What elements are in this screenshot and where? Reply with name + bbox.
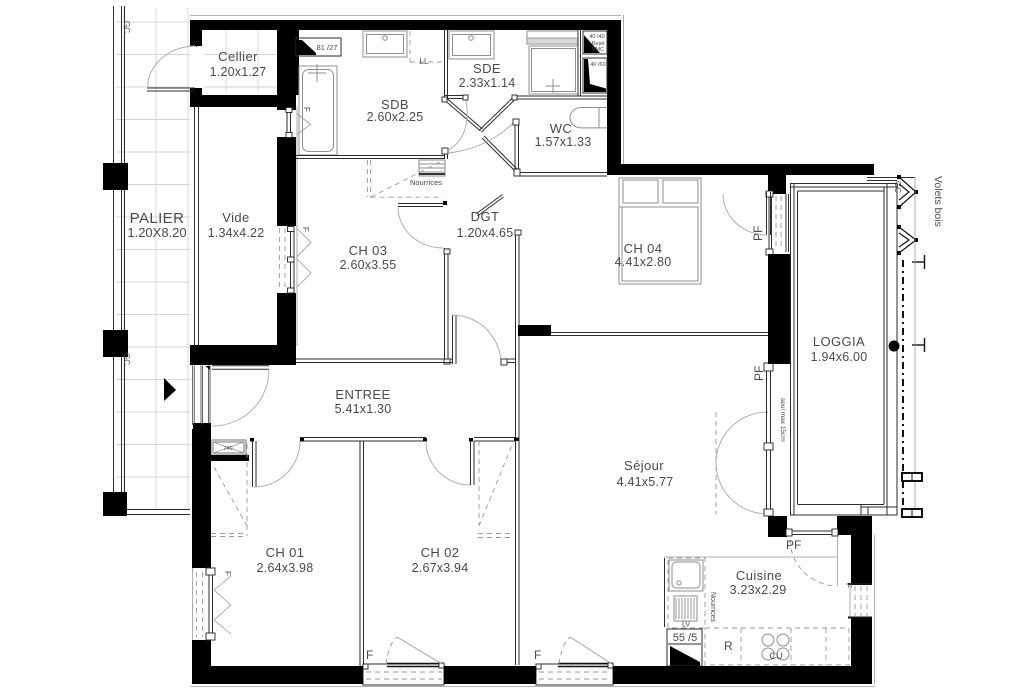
svg-text:4.41x2.80: 4.41x2.80 xyxy=(615,255,672,269)
svg-text:Nourrices: Nourrices xyxy=(410,178,442,187)
svg-text:F: F xyxy=(844,583,853,588)
svg-text:CU: CU xyxy=(770,651,783,661)
svg-text:Cuisine: Cuisine xyxy=(736,568,782,583)
svg-text:ENTREE: ENTREE xyxy=(335,387,390,402)
svg-text:F: F xyxy=(301,227,310,232)
svg-text:PF: PF xyxy=(786,538,801,552)
svg-text:F: F xyxy=(534,648,541,662)
svg-text:Volets bois: Volets bois xyxy=(932,176,944,227)
svg-text:GC: GC xyxy=(122,353,131,365)
svg-text:seul max 15cm: seul max 15cm xyxy=(779,398,786,442)
svg-text:1.20X8.20: 1.20X8.20 xyxy=(127,225,186,240)
svg-text:55 /5: 55 /5 xyxy=(673,632,697,644)
svg-text:2.60x2.25: 2.60x2.25 xyxy=(367,110,424,124)
svg-text:Séjour: Séjour xyxy=(624,458,664,473)
svg-text:CH 03: CH 03 xyxy=(349,243,388,258)
svg-text:40 /60: 40 /60 xyxy=(590,62,605,68)
svg-text:DGT: DGT xyxy=(471,209,500,224)
svg-text:2.33x1.14: 2.33x1.14 xyxy=(459,76,516,90)
svg-text:SDE: SDE xyxy=(473,61,501,76)
svg-text:40 /40: 40 /40 xyxy=(589,34,604,40)
svg-text:2.60x3.55: 2.60x3.55 xyxy=(340,258,397,272)
svg-text:3.23x2.29: 3.23x2.29 xyxy=(730,583,787,597)
svg-text:F: F xyxy=(366,648,373,662)
svg-text:1.57x1.33: 1.57x1.33 xyxy=(535,135,592,149)
svg-text:4.41x5.77: 4.41x5.77 xyxy=(617,475,674,489)
svg-text:CH 02: CH 02 xyxy=(421,545,460,560)
svg-text:F: F xyxy=(223,571,232,576)
svg-text:PF: PF xyxy=(752,366,766,381)
svg-text:740: 740 xyxy=(223,446,232,452)
svg-text:1.94x6.00: 1.94x6.00 xyxy=(811,350,868,364)
svg-text:CH 01: CH 01 xyxy=(266,545,305,560)
svg-text:LOGGIA: LOGGIA xyxy=(813,334,865,349)
svg-text:1.20x4.65: 1.20x4.65 xyxy=(457,226,514,240)
svg-text:CH 04: CH 04 xyxy=(624,241,663,256)
svg-text:Vide: Vide xyxy=(222,210,249,225)
svg-text:GC: GC xyxy=(893,181,902,193)
svg-text:VMC: VMC xyxy=(592,47,604,53)
svg-text:LL: LL xyxy=(420,57,429,66)
svg-text:Cellier: Cellier xyxy=(218,49,258,64)
svg-text:1.20x1.27: 1.20x1.27 xyxy=(210,65,267,79)
svg-text:PF: PF xyxy=(751,226,765,241)
svg-text:WC: WC xyxy=(550,121,572,136)
svg-text:1.34x4.22: 1.34x4.22 xyxy=(208,226,265,240)
svg-text:81 /27: 81 /27 xyxy=(317,43,338,52)
svg-text:5.41x1.30: 5.41x1.30 xyxy=(335,402,392,416)
svg-text:F: F xyxy=(302,107,311,112)
svg-text:LV: LV xyxy=(682,622,690,629)
svg-text:2.64x3.98: 2.64x3.98 xyxy=(257,561,314,575)
svg-text:Nourrices: Nourrices xyxy=(709,592,716,622)
svg-text:GC: GC xyxy=(122,21,131,33)
svg-text:2.67x3.94: 2.67x3.94 xyxy=(412,561,469,575)
svg-text:R: R xyxy=(724,639,733,653)
